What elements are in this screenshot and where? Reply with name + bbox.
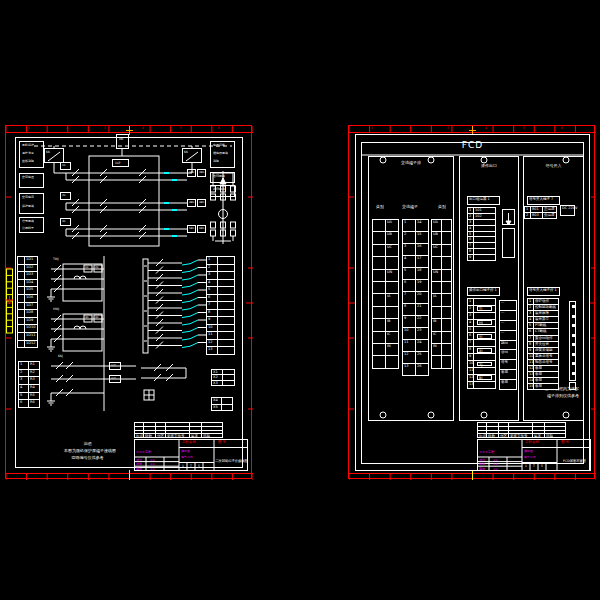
- cell: ···: [500, 301, 516, 310]
- cell-label: 4: [208, 280, 210, 284]
- cell-label: 8: [469, 347, 471, 351]
- cell-label: 信号: [501, 360, 508, 364]
- cell-label: 22: [417, 316, 421, 320]
- cell-label: 1D7: [26, 303, 33, 307]
- cell-label: UA: [433, 220, 438, 224]
- cell-label: 13: [529, 372, 533, 376]
- component-box: DK: [116, 134, 129, 149]
- cell-label: 7: [469, 243, 471, 247]
- cell: [386, 307, 398, 318]
- specialty: 电气二次: [524, 455, 536, 458]
- cell-label: 重合闸动作: [535, 336, 553, 340]
- cell-label: CT断线: [535, 329, 547, 333]
- zone-number: 5: [180, 126, 182, 129]
- cell: [432, 282, 441, 293]
- cell-label: 备用: [535, 378, 542, 382]
- cell: [478, 427, 486, 430]
- cell: [156, 431, 165, 434]
- cell-label: 5: [404, 268, 406, 272]
- cell-label: 6: [469, 237, 471, 241]
- cell: 9: [528, 348, 533, 353]
- cell-label: 14: [417, 220, 421, 224]
- cell: [499, 427, 508, 430]
- cell-label: 日期: [203, 434, 210, 437]
- terminal-column: [569, 301, 576, 381]
- cell-label: 11: [529, 360, 533, 364]
- cell: HJ: [474, 320, 495, 326]
- coil-box: ZJ: [477, 362, 492, 367]
- cell-label: R4: [30, 385, 35, 389]
- cell-label: 11: [404, 340, 408, 344]
- cell: 1D5: [25, 287, 37, 294]
- label: 1BD: [189, 171, 194, 174]
- legend-box: 电压切换继电器回路说明: [210, 141, 235, 168]
- cell: 合闸: [500, 350, 516, 359]
- cell-label: UN: [433, 270, 438, 274]
- cell: [373, 294, 385, 305]
- cell-label: 处数: [145, 434, 152, 437]
- cell: X2: [212, 375, 222, 379]
- cell-label: 标记: [136, 434, 143, 437]
- cell: [474, 354, 495, 360]
- cell-label: 3: [404, 244, 406, 248]
- cell-label: 10: [208, 325, 212, 329]
- relay-box-label: 1D: [85, 266, 89, 269]
- cell-label: 5: [208, 287, 210, 291]
- cell: 预告总信号: [534, 360, 558, 365]
- cell-label: 6: [469, 333, 471, 337]
- cell-label: R1: [30, 362, 35, 366]
- cell: [18, 280, 24, 287]
- signal-power-table: 1801正电源2803负电源: [524, 206, 557, 219]
- cell: [156, 423, 165, 426]
- cell: 7: [468, 243, 473, 248]
- sign-value: ××: [150, 467, 155, 470]
- cell-label: IC: [433, 332, 436, 336]
- cell: 7: [207, 302, 217, 309]
- cell: 3: [19, 377, 28, 384]
- cell-label: 6: [404, 280, 406, 284]
- cell: 1D1: [25, 257, 37, 264]
- coil-box: BJ: [477, 375, 492, 380]
- cell-label: 25: [417, 352, 421, 356]
- cell: [442, 294, 451, 305]
- zone-number: 4: [142, 126, 144, 129]
- cell: 13: [528, 372, 533, 377]
- cell-label: 9: [208, 317, 210, 321]
- cell-label: 14: [529, 378, 533, 382]
- label: 2D: [62, 194, 66, 197]
- cell: 1: [207, 257, 217, 264]
- cell: 26: [416, 364, 428, 375]
- cell: [222, 398, 232, 404]
- relay-box-label: 2D: [95, 266, 99, 269]
- cell: 2: [528, 305, 533, 310]
- sign-value: ××: [150, 462, 155, 465]
- cell: 更改文件号: [509, 434, 532, 437]
- sign-value: ××: [493, 467, 498, 470]
- switch-box: KK: [44, 148, 64, 163]
- cell: [202, 423, 222, 426]
- terminal-dot: [572, 315, 575, 318]
- cell: IC: [386, 332, 398, 343]
- terminal-box: 6BD: [197, 225, 206, 233]
- cell: [223, 370, 234, 374]
- cell: 备用: [500, 370, 516, 379]
- cell: [218, 317, 234, 324]
- cell-label: IC: [387, 332, 390, 336]
- label: 3D: [62, 220, 66, 223]
- legend-box: 微机保护测控装置接线说明: [19, 141, 44, 168]
- cell: X1: [212, 370, 222, 374]
- cell-label: 10: [469, 361, 473, 365]
- legend-text: 信号回路: [22, 219, 34, 222]
- terminal-strip: 12345678910111213: [206, 256, 235, 355]
- cell-label: 1D11: [26, 333, 35, 337]
- cell-label: 10: [529, 354, 533, 358]
- cell-label: 9: [469, 354, 471, 358]
- cell-label: X2: [213, 375, 218, 379]
- terminal-dot: [572, 343, 575, 346]
- cell-label: 801: [532, 207, 539, 211]
- cell: 备用: [534, 366, 558, 371]
- zone-number: 1: [28, 126, 30, 129]
- zone-number: 2: [409, 126, 411, 129]
- cell-label: 803: [532, 213, 539, 217]
- label: 5BD: [189, 227, 194, 230]
- cell: 1: [468, 299, 473, 305]
- cell-label: 12: [208, 340, 212, 344]
- row-label-box: 1D: [60, 162, 71, 170]
- cell: [18, 257, 24, 264]
- cell: 803: [531, 213, 542, 218]
- cell: 更改文件号: [166, 434, 189, 437]
- cell: 101: [474, 208, 495, 213]
- cell: [218, 325, 234, 332]
- design-stage: 施工图: [181, 449, 190, 452]
- cell: [442, 307, 451, 318]
- cell: 18: [416, 268, 428, 279]
- cell: 22: [416, 316, 428, 327]
- cell: 7: [528, 336, 533, 341]
- cell: [18, 265, 24, 272]
- cell: IA: [386, 294, 398, 305]
- cell: 1: [19, 362, 28, 369]
- cell: [144, 423, 155, 426]
- scale-cell: 5: [198, 464, 200, 467]
- cell: [18, 272, 24, 279]
- cell-label: 9: [529, 348, 531, 352]
- cell-label: 3: [208, 272, 210, 276]
- cell: [545, 423, 565, 426]
- cell: IA: [432, 294, 441, 305]
- cell: [218, 295, 234, 302]
- cell: 6: [403, 280, 415, 291]
- cell: 3: [468, 313, 473, 319]
- cell: 23: [416, 328, 428, 339]
- cell: 备用: [534, 384, 558, 389]
- cell: 装置故障: [534, 311, 558, 316]
- cell: 8: [468, 249, 473, 254]
- cell: 1D12: [25, 341, 37, 348]
- cell: 5: [528, 323, 533, 328]
- sign-label: 审核: [136, 467, 142, 470]
- cell-label: 1D5: [26, 287, 33, 291]
- cell: 14: [528, 378, 533, 383]
- cell: 4: [19, 385, 28, 392]
- cell-label: 备用: [535, 372, 542, 376]
- cell-label: 保护动作: [535, 299, 549, 303]
- cell: 12: [528, 366, 533, 371]
- cell: [533, 427, 544, 430]
- cell: X5: [212, 405, 221, 411]
- zone-number: 1: [371, 126, 373, 129]
- cell-label: 弹簧未储能: [535, 348, 553, 352]
- scale-cell: 1: [525, 464, 527, 467]
- cell: 日期: [545, 434, 565, 437]
- label: 3BD: [189, 201, 194, 204]
- cell: [499, 423, 508, 426]
- cell-label: IB: [387, 319, 390, 323]
- cell: [18, 310, 24, 317]
- cell: 11: [528, 360, 533, 365]
- cell-label: R5: [30, 393, 35, 397]
- cell: [442, 332, 451, 343]
- legend-text: 接线说明: [22, 159, 34, 162]
- cell-label: 11: [208, 332, 212, 336]
- cell: UA: [386, 220, 398, 231]
- zone-number: 5: [523, 126, 525, 129]
- legend-text: 合闸回路: [213, 174, 225, 177]
- terminal-box: 3BD: [187, 199, 196, 207]
- cell-label: R6: [30, 400, 35, 404]
- cell: XJ: [474, 347, 495, 353]
- cell: [432, 307, 441, 318]
- cell: UN: [386, 270, 398, 281]
- terminal-box: 2BD: [197, 169, 206, 177]
- cell-label: R3: [30, 377, 35, 381]
- project-name: ×××工程: [479, 450, 495, 454]
- scale-cell: 1: [182, 464, 184, 467]
- cell: R4: [29, 385, 39, 392]
- cell-label: ···: [501, 331, 504, 335]
- cell: [478, 423, 486, 426]
- label: 4BD: [199, 201, 204, 204]
- cell: 备用: [534, 372, 558, 377]
- spare-box: [502, 228, 515, 258]
- label: 1LP: [115, 161, 120, 164]
- cell: [373, 257, 385, 268]
- cell: 备用: [500, 380, 516, 389]
- sign-value: ××: [150, 458, 155, 461]
- legend-text: 说明: [213, 159, 219, 162]
- cell: [474, 237, 495, 242]
- cell-label: 26: [417, 364, 421, 368]
- cell: 19: [416, 280, 428, 291]
- cell: [218, 302, 234, 309]
- cell-label: 5: [529, 323, 531, 327]
- cell: 装置异常: [534, 317, 558, 322]
- cell: [18, 333, 24, 340]
- sign-label: 设计: [479, 458, 485, 461]
- relay-box-label: 3D: [85, 316, 89, 319]
- cell: [442, 220, 451, 231]
- cell: [166, 427, 189, 430]
- cell: [386, 257, 398, 268]
- cell: R3: [29, 377, 39, 384]
- cell-label: 12: [404, 352, 408, 356]
- cell: X4: [212, 398, 221, 404]
- cell-label: 8: [208, 310, 210, 314]
- terminal-dot: [572, 324, 575, 327]
- cell-label: X4: [213, 398, 218, 402]
- cell: [218, 287, 234, 294]
- cell-label: UB: [387, 232, 392, 236]
- cell: 5: [468, 327, 473, 333]
- cell-label: 2: [404, 232, 406, 236]
- label: 6BD: [199, 227, 204, 230]
- cell: 3: [207, 272, 217, 279]
- cell-label: 标记: [479, 434, 486, 437]
- cell-label: 1D4: [26, 280, 33, 284]
- zone-number: 3: [447, 126, 449, 129]
- cell: 1D9: [25, 318, 37, 325]
- cell: 25: [416, 352, 428, 363]
- terminal-dot: [572, 305, 575, 308]
- cell-label: IB: [433, 319, 436, 323]
- cell: 跳闸: [500, 341, 516, 350]
- legend-text: 跳闸回路: [213, 187, 225, 190]
- cell: IB: [386, 319, 398, 330]
- cell-label: 1D6: [26, 295, 33, 299]
- cell-label: 事故总信号: [535, 354, 553, 358]
- terminal-box: 1BD: [187, 169, 196, 177]
- sheet-left-schematic[interactable]: 说明 本图为微机保护屏端子接线图 回路编号仅供参考 123456微机保护测控装置…: [5, 125, 252, 479]
- cell: 7: [468, 340, 473, 346]
- cell-label: 预告总信号: [535, 360, 553, 364]
- cell: [190, 427, 201, 430]
- cell-label: 1: [469, 299, 471, 303]
- cell-label: 4: [529, 317, 531, 321]
- cell: 弹簧未储能: [534, 348, 558, 353]
- cell-label: 开关位置: [535, 342, 549, 346]
- cell: [487, 423, 498, 426]
- zone-number: 6: [218, 126, 220, 129]
- cell: [442, 282, 451, 293]
- cell: 4: [528, 317, 533, 322]
- cell: UC: [432, 245, 441, 256]
- coil-label: TJ: [479, 307, 482, 311]
- cell: 1D4: [25, 280, 37, 287]
- cell: [474, 368, 495, 374]
- cell-label: UC: [387, 245, 392, 249]
- coil-label: YJ: [479, 335, 482, 339]
- cell: [373, 356, 385, 367]
- red-label-number: 图 号: [218, 440, 226, 444]
- cell: X3: [212, 381, 222, 385]
- cell: 9: [468, 354, 473, 360]
- cell: 16: [416, 244, 428, 255]
- cell-label: 负电源: [544, 213, 555, 217]
- specialty: 电气二次: [181, 455, 193, 458]
- cell: 15: [528, 384, 533, 389]
- relay-cells: ············跳闸合闸信号备用备用: [499, 300, 517, 390]
- cell-label: 3: [469, 220, 471, 224]
- project-name: ×××工程: [136, 450, 152, 454]
- cell: [218, 310, 234, 317]
- terminal-end-box: [569, 382, 576, 390]
- cell-label: 更改文件号: [167, 434, 185, 437]
- cell: [474, 340, 495, 346]
- cell: 标记: [478, 434, 486, 437]
- design-stage: 施工图: [524, 449, 533, 452]
- cell: 信号: [500, 360, 516, 369]
- relay-group-label: TWJ: [53, 257, 59, 260]
- cell-label: 23: [417, 328, 421, 332]
- side-table-1: 1D11D21D31D41D51D61D71D81D91D101D111D12: [17, 256, 38, 348]
- cell: [190, 431, 201, 434]
- cell: R5: [29, 393, 39, 400]
- cell-label: 13: [208, 347, 212, 351]
- cell: 事故总信号: [534, 354, 558, 359]
- terminal-dot: [572, 353, 575, 356]
- coil-box: HJ: [477, 320, 492, 325]
- output-table-2: 12TJ34HJ56YJ78XJ910ZJ1112BJ13: [467, 298, 496, 389]
- cell: [509, 427, 532, 430]
- cell: [166, 431, 189, 434]
- cell: [442, 257, 451, 268]
- coil-label: BJ: [479, 376, 482, 380]
- cell: 3: [528, 311, 533, 316]
- cell-label: 5: [20, 393, 22, 397]
- cell-label: PT断线: [535, 323, 546, 327]
- cell-label: UB: [433, 232, 438, 236]
- scale-cell: 5: [541, 464, 543, 467]
- cell: 12: [403, 352, 415, 363]
- cell-label: 3: [20, 377, 22, 381]
- terminal-box: 5BD: [187, 225, 196, 233]
- cell-label: 备用: [535, 384, 542, 388]
- legend-text: 电压切换: [213, 143, 225, 146]
- cell: 17: [416, 256, 428, 267]
- cell: [144, 427, 155, 430]
- sign-value: ××: [493, 458, 498, 461]
- cell-label: 6: [529, 329, 531, 333]
- cell: IC: [432, 332, 441, 343]
- legend-text: 交流电流: [22, 195, 34, 198]
- output-table-1: 110121023456789: [467, 207, 496, 261]
- zone-number: 3: [104, 126, 106, 129]
- cell: 日期: [202, 434, 222, 437]
- cell: 6: [528, 329, 533, 334]
- cell: [474, 232, 495, 237]
- cell-label: 2: [469, 306, 471, 310]
- cell: [218, 332, 234, 339]
- cell: [373, 332, 385, 343]
- cell: [509, 423, 532, 426]
- cell-label: 8: [404, 304, 406, 308]
- cell: [478, 431, 486, 434]
- cell-label: 签字: [534, 434, 541, 437]
- cell: [218, 272, 234, 279]
- cell: [373, 319, 385, 330]
- cell-label: IN: [387, 344, 391, 348]
- cell: [442, 344, 451, 355]
- cell: ···: [500, 321, 516, 330]
- sheet-right-panel-layout[interactable]: FCD 交流端子排 操作出口 信号开入 类别 交流端子 类别 出口继电器 1 操…: [348, 125, 595, 479]
- cell: 20: [416, 292, 428, 303]
- cell-label: 备用: [501, 370, 508, 374]
